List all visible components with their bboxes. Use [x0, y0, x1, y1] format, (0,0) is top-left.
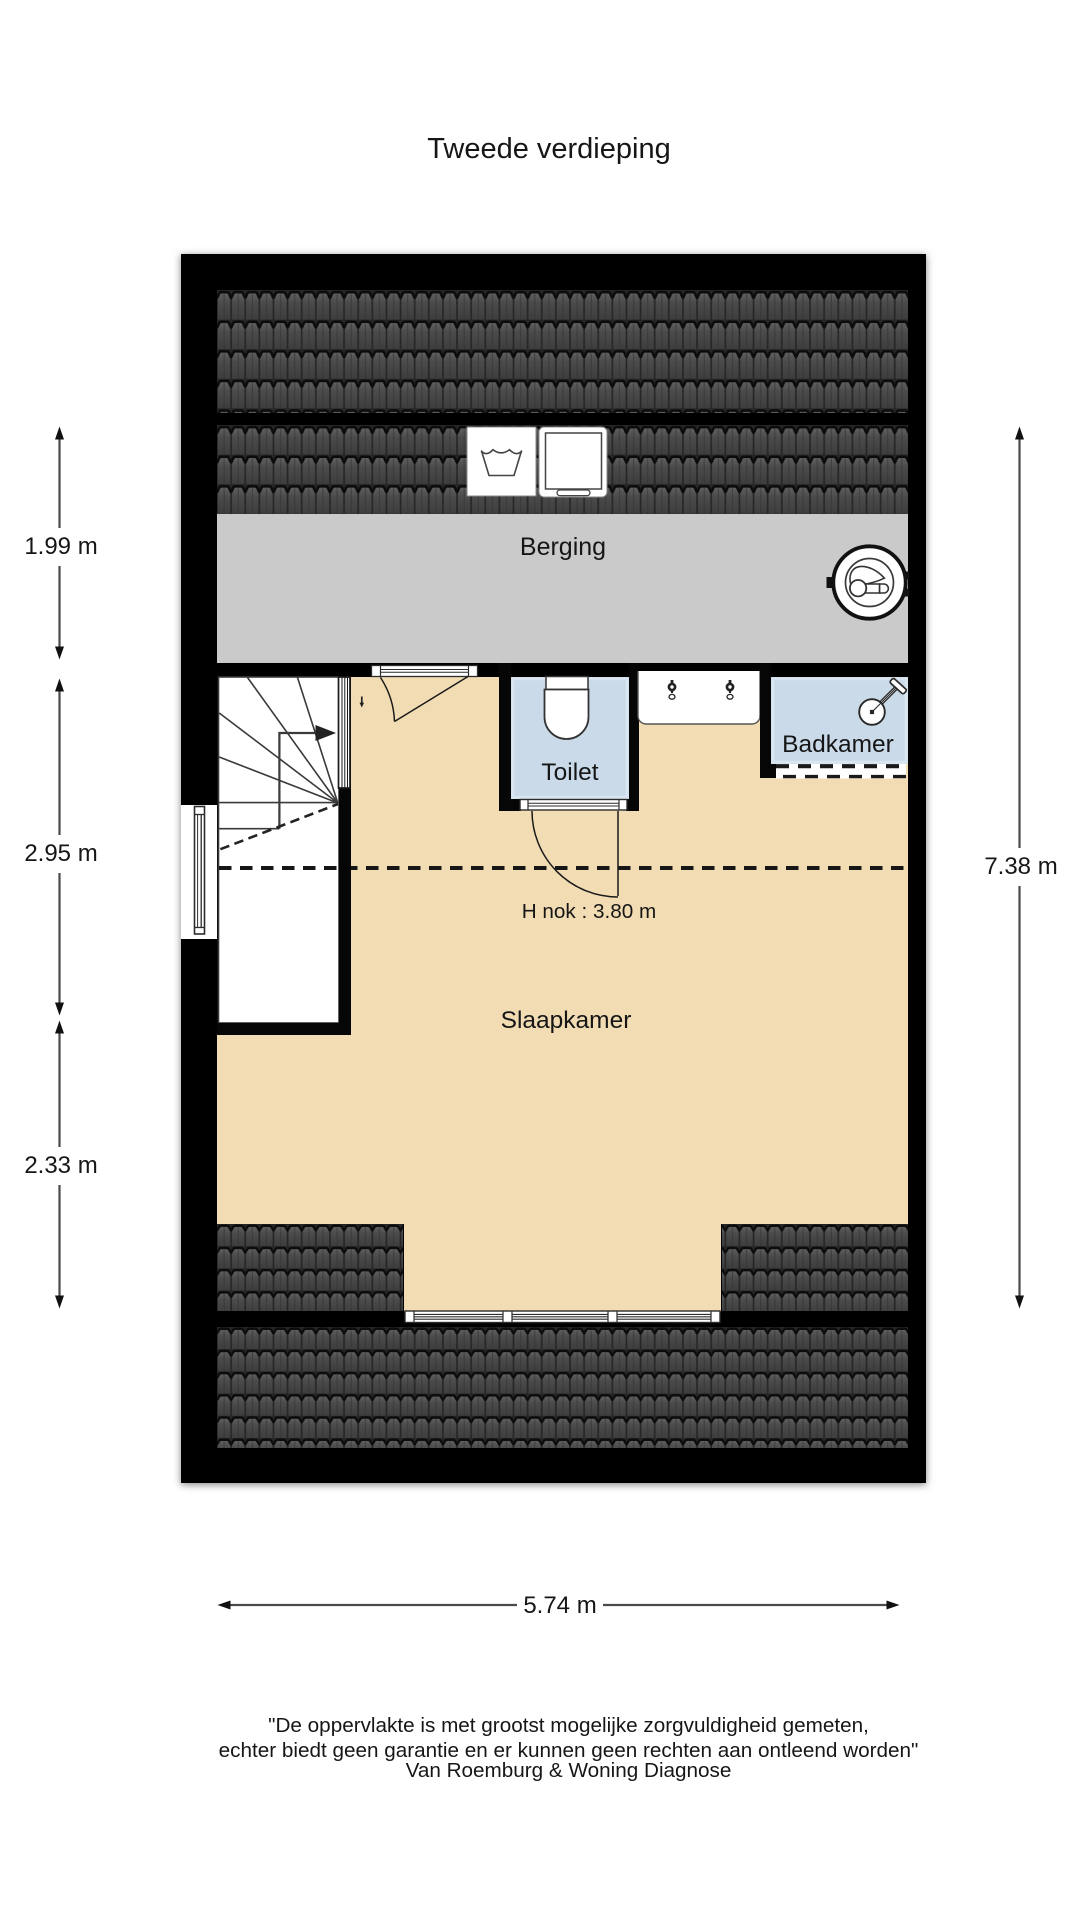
svg-text:"De oppervlakte is met grootst: "De oppervlakte is met grootst mogelijke…: [268, 1714, 869, 1737]
svg-text:7.38 m: 7.38 m: [984, 853, 1057, 880]
svg-text:Slaapkamer: Slaapkamer: [501, 1007, 632, 1034]
svg-text:Badkamer: Badkamer: [782, 731, 894, 758]
svg-text:1.99 m: 1.99 m: [24, 533, 97, 560]
svg-text:5.74 m: 5.74 m: [523, 1592, 596, 1619]
svg-text:Tweede verdieping: Tweede verdieping: [427, 133, 670, 165]
svg-text:H nok : 3.80 m: H nok : 3.80 m: [522, 900, 657, 923]
svg-text:Berging: Berging: [520, 533, 606, 561]
svg-text:2.33 m: 2.33 m: [24, 1152, 97, 1179]
svg-text:Toilet: Toilet: [541, 759, 598, 786]
svg-text:2.95 m: 2.95 m: [24, 840, 97, 867]
svg-text:Van Roemburg & Woning Diagnose: Van Roemburg & Woning Diagnose: [406, 1759, 732, 1782]
